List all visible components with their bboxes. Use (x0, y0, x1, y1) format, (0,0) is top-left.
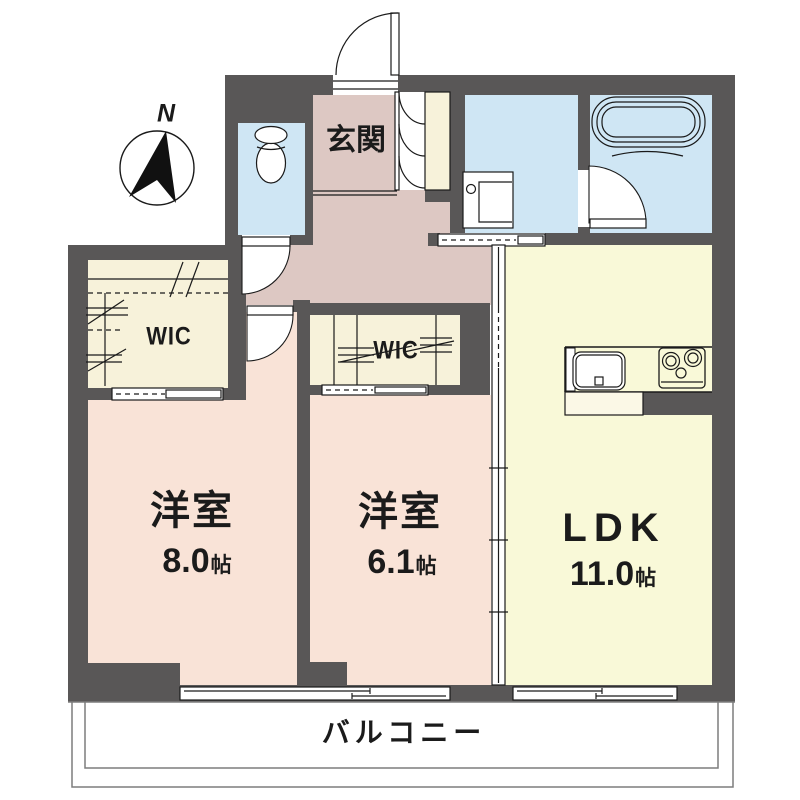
wic-center-sliding-door (322, 385, 428, 395)
floor-plan: N 玄関 WIC WIC 洋室 8.0帖 洋室 6.1帖 LDK 11.0帖 バ… (0, 0, 800, 800)
ldk-window (513, 687, 677, 700)
wic-center-label: WIC (373, 339, 418, 364)
ldk-floor (505, 245, 712, 685)
ldk-sliding-partition (489, 245, 508, 685)
compass-north-icon (120, 131, 194, 205)
westroom2-floor (310, 395, 491, 685)
washbasin-icon (463, 172, 513, 228)
ldk-size-unit: 帖 (635, 568, 656, 589)
floor-plan-drawing (0, 0, 800, 800)
toilet-icon (255, 127, 287, 184)
ldk-size-number: 11.0 (570, 557, 634, 591)
westroom2-label: 洋室 (358, 492, 442, 532)
ldk-size: 11.0帖 (570, 557, 656, 591)
westroom1-size-number: 8.0 (162, 544, 209, 578)
entrance-door (333, 13, 399, 95)
wic-left-sliding-door (112, 388, 223, 400)
balcony-label: バルコニー (322, 719, 486, 747)
westroom1-size: 8.0帖 (162, 544, 231, 578)
ldk-label: LDK (562, 508, 665, 548)
westroom1-label: 洋室 (150, 491, 234, 531)
kitchen-sink-icon (573, 352, 625, 390)
compass-north-label: N (157, 102, 175, 127)
westroom2-size-unit: 帖 (416, 556, 437, 577)
genkan-label: 玄関 (326, 126, 386, 156)
wic-left-label: WIC (146, 325, 191, 350)
westroom2-size: 6.1帖 (367, 545, 436, 579)
shoe-cabinet (395, 92, 450, 190)
westroom1-size-unit: 帖 (211, 555, 232, 576)
westrooms-window (180, 687, 450, 700)
westroom2-size-number: 6.1 (367, 545, 414, 579)
washroom-sliding-door (438, 234, 545, 246)
